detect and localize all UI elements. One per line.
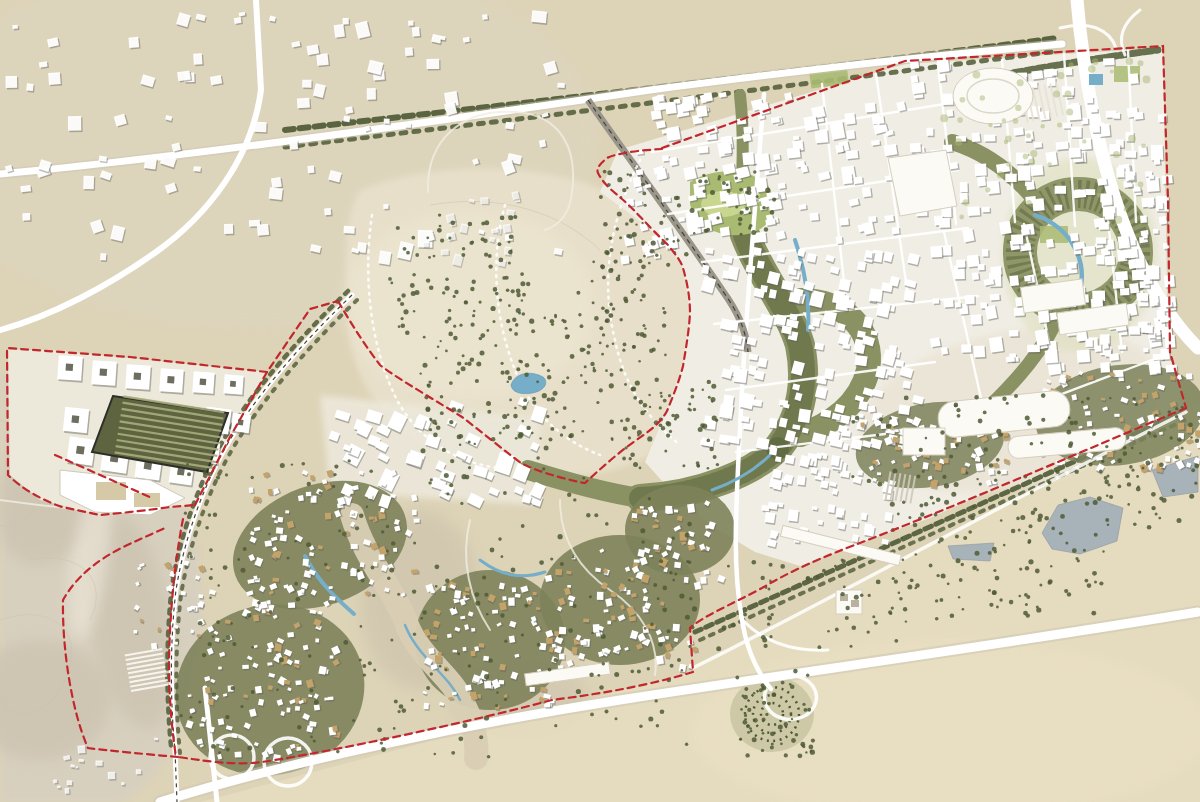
tree-dot <box>429 285 434 290</box>
building <box>350 568 356 576</box>
tree-dot <box>659 406 662 409</box>
building <box>831 455 841 466</box>
tree-dot <box>1114 216 1122 224</box>
tree-dot <box>605 709 609 713</box>
tree-dot <box>568 434 572 438</box>
tree-dot <box>892 577 895 580</box>
building <box>1164 301 1173 308</box>
tree-dot <box>907 585 912 590</box>
tree-dot <box>674 418 677 421</box>
tree-dot <box>307 482 311 486</box>
tree-dot <box>657 597 660 600</box>
tree-dot <box>526 282 530 286</box>
tree-dot <box>210 568 212 570</box>
building <box>697 146 708 154</box>
tree-dot <box>611 437 614 440</box>
tree-dot <box>629 218 634 223</box>
building <box>828 504 836 513</box>
tree-dot <box>690 388 694 392</box>
tree-dot <box>932 502 935 505</box>
tree-dot <box>822 569 826 573</box>
tree-dot <box>596 401 599 404</box>
building <box>482 14 488 20</box>
tree-dot <box>640 528 645 533</box>
tree-dot <box>922 470 925 473</box>
tree-dot <box>940 598 944 602</box>
tree-dot <box>589 595 592 598</box>
building <box>1155 366 1161 373</box>
tree-dot <box>243 547 247 551</box>
tree-dot <box>439 665 442 668</box>
tree-dot <box>306 542 311 547</box>
tree-dot <box>604 250 609 255</box>
building <box>559 654 565 660</box>
tree-dot <box>1083 549 1086 552</box>
building <box>545 575 553 582</box>
tree-dot <box>448 236 451 239</box>
courtyard-block-court <box>65 363 73 371</box>
building <box>839 217 849 225</box>
building <box>684 577 689 583</box>
tree-dot <box>851 475 854 478</box>
tree-dot <box>372 594 375 597</box>
tree-dot <box>532 397 536 401</box>
tree-dot <box>963 199 970 206</box>
building <box>695 161 704 168</box>
tree-dot <box>592 301 595 304</box>
tree-dot <box>662 307 665 310</box>
tree-dot <box>674 573 677 576</box>
building <box>412 510 417 515</box>
tree-dot <box>606 345 609 348</box>
tree-dot <box>639 467 642 470</box>
building <box>938 73 946 81</box>
tree-dot <box>997 171 1004 178</box>
tree-dot <box>522 293 526 297</box>
tree-dot <box>1126 58 1133 65</box>
tree-dot <box>747 731 750 734</box>
tree-dot <box>451 751 455 755</box>
building <box>99 156 107 162</box>
tree-dot <box>663 311 667 315</box>
tree-dot <box>589 672 594 677</box>
tree-dot <box>1041 124 1045 128</box>
tree-dot <box>1033 508 1037 512</box>
tree-dot <box>751 230 756 235</box>
tree-dot <box>276 689 279 692</box>
tree-dot <box>886 424 891 429</box>
building <box>603 609 608 612</box>
courtyard-block-court <box>76 446 85 455</box>
tree-dot <box>541 363 545 367</box>
building <box>911 82 925 95</box>
tree-dot <box>919 448 923 452</box>
building <box>193 53 202 65</box>
building <box>892 227 900 235</box>
building <box>973 345 985 357</box>
tree-dot <box>667 629 671 633</box>
tree-dot <box>1087 583 1092 588</box>
tree-dot <box>562 425 566 429</box>
tree-dot <box>1085 579 1089 583</box>
tree-dot <box>567 493 571 497</box>
tree-dot <box>302 462 306 466</box>
tree-dot <box>874 621 878 625</box>
tree-dot <box>1030 491 1034 495</box>
tree-dot <box>1069 62 1074 67</box>
tree-dot <box>935 599 938 602</box>
tree-dot <box>1003 544 1006 547</box>
tree-dot <box>851 420 855 424</box>
building <box>1027 344 1040 352</box>
tree-dot <box>1023 154 1029 160</box>
tree-dot <box>944 500 949 505</box>
tree-dot <box>702 389 704 391</box>
tree-dot <box>1038 514 1043 519</box>
tree-dot <box>332 485 335 488</box>
building <box>1070 263 1077 268</box>
tree-dot <box>682 464 685 467</box>
tree-dot <box>905 620 907 622</box>
building <box>484 680 491 688</box>
tree-dot <box>189 555 193 559</box>
building <box>932 298 939 304</box>
tree-dot <box>762 701 766 705</box>
tree-dot <box>643 403 648 408</box>
tree-dot <box>687 522 692 527</box>
tree-dot <box>649 406 651 408</box>
building <box>910 143 921 153</box>
tree-dot <box>1099 470 1103 474</box>
tree-dot <box>656 724 659 727</box>
building <box>341 562 348 569</box>
building <box>841 430 851 437</box>
building <box>1045 350 1058 364</box>
tree-dot <box>1059 531 1063 535</box>
building <box>5 76 17 88</box>
building <box>788 509 799 521</box>
tree-dot <box>617 212 622 217</box>
building <box>12 25 18 29</box>
building <box>1099 222 1109 230</box>
tree-dot <box>435 564 440 569</box>
tree-dot <box>1123 446 1127 450</box>
tree-dot <box>960 97 966 103</box>
tree-dot <box>636 332 640 336</box>
tree-dot <box>216 476 220 480</box>
tree-dot <box>717 177 720 180</box>
building <box>242 665 249 669</box>
tree-dot <box>507 380 510 383</box>
tree-dot <box>1072 548 1077 553</box>
building <box>531 10 547 23</box>
tree-dot <box>411 291 416 296</box>
tree-dot <box>944 483 949 488</box>
tree-dot <box>1127 482 1131 486</box>
building <box>772 469 782 479</box>
tree-dot <box>584 381 587 384</box>
building <box>1085 339 1092 347</box>
building <box>379 554 385 560</box>
tree-dot <box>468 466 471 469</box>
tree-dot <box>954 403 959 408</box>
tree-dot <box>1188 423 1193 428</box>
tree-dot <box>296 597 301 602</box>
tree-dot <box>648 497 651 500</box>
building <box>1101 194 1113 206</box>
tree-dot <box>617 177 622 182</box>
tree-dot <box>743 695 748 700</box>
tree-dot <box>434 753 437 756</box>
building <box>853 176 863 184</box>
building <box>20 185 31 192</box>
building <box>1014 307 1025 316</box>
building <box>810 212 819 220</box>
tree-dot <box>879 417 883 421</box>
tree-dot <box>237 558 240 561</box>
tree-dot <box>698 427 703 432</box>
tree-dot <box>268 533 271 536</box>
tree-dot <box>685 743 688 746</box>
tree-dot <box>735 206 738 209</box>
tree-dot <box>440 395 444 399</box>
tree-dot <box>371 566 375 570</box>
building <box>572 647 578 654</box>
tree-dot <box>619 236 622 239</box>
building <box>302 80 311 88</box>
tree-dot <box>745 753 749 757</box>
building <box>607 621 611 625</box>
tree-dot <box>532 401 536 405</box>
tree-dot <box>505 425 510 430</box>
tree-dot <box>501 555 504 558</box>
tree-dot <box>469 241 473 245</box>
tree-dot <box>996 458 1000 462</box>
tree-dot <box>504 698 507 701</box>
tree-dot <box>399 704 404 709</box>
tree-dot <box>558 534 563 539</box>
tree-dot <box>495 292 499 296</box>
tree-dot <box>1068 416 1071 419</box>
tree-dot <box>655 254 658 257</box>
tree-dot <box>508 304 511 307</box>
tree-dot <box>1136 475 1139 478</box>
tree-dot <box>1026 200 1032 206</box>
building <box>294 660 299 664</box>
tree-dot <box>582 430 585 433</box>
building <box>297 98 310 109</box>
building <box>77 745 85 753</box>
tree-dot <box>605 522 609 526</box>
tree-dot <box>631 670 635 674</box>
tree-dot <box>876 433 880 437</box>
tree-dot <box>430 672 433 675</box>
tree-dot <box>413 310 415 312</box>
tree-dot <box>531 329 535 333</box>
tree-dot <box>520 360 523 363</box>
tree-dot <box>972 505 975 508</box>
building <box>756 153 771 170</box>
tree-dot <box>942 475 946 479</box>
tree-dot <box>669 430 672 433</box>
tree-dot <box>1041 393 1046 398</box>
tree-dot <box>846 606 850 610</box>
building <box>478 643 484 648</box>
tree-dot <box>756 195 759 198</box>
tree-dot <box>425 406 430 411</box>
tree-dot <box>386 550 389 553</box>
building <box>314 705 320 711</box>
tree-dot <box>526 426 530 430</box>
tree-dot <box>1113 151 1120 158</box>
tree-dot <box>1102 550 1104 552</box>
tree-dot <box>904 396 909 401</box>
tree-dot <box>1014 394 1018 398</box>
tree-dot <box>629 261 632 264</box>
tree-dot <box>498 242 502 246</box>
tree-dot <box>767 615 772 620</box>
tree-dot <box>212 635 215 638</box>
tree-dot <box>348 459 351 462</box>
building <box>1118 345 1126 350</box>
building <box>1031 70 1043 79</box>
tree-dot <box>647 667 650 670</box>
tree-dot <box>440 411 444 415</box>
tree-dot <box>1026 613 1030 617</box>
building <box>1120 288 1129 295</box>
building <box>877 115 884 124</box>
building <box>773 154 780 161</box>
building <box>1064 68 1072 76</box>
building <box>181 591 186 595</box>
tree-dot <box>390 282 393 285</box>
tree-dot <box>294 540 297 543</box>
tree-dot <box>1136 487 1141 492</box>
building <box>743 126 752 134</box>
tree-dot <box>840 592 844 596</box>
tree-dot <box>642 192 646 196</box>
building <box>1133 112 1143 120</box>
tree-dot <box>1094 581 1097 584</box>
tree-dot <box>554 658 558 662</box>
tree-dot <box>240 705 243 708</box>
tree-dot <box>550 319 555 324</box>
tree-dot <box>232 642 236 646</box>
tree-dot <box>338 529 341 532</box>
tree-dot <box>184 512 187 515</box>
tree-dot <box>657 339 660 342</box>
tree-dot <box>765 188 770 193</box>
tree-dot <box>983 411 987 415</box>
building <box>96 761 103 766</box>
tree-dot <box>722 181 726 185</box>
building <box>249 487 254 493</box>
tree-dot <box>554 314 557 317</box>
tree-dot <box>950 613 955 618</box>
building <box>344 226 355 234</box>
tree-dot <box>226 635 231 640</box>
tree-dot <box>644 204 647 207</box>
tree-dot <box>537 643 541 647</box>
building <box>191 606 195 610</box>
tree-dot <box>562 380 566 384</box>
building <box>408 21 413 26</box>
tree-dot <box>641 294 645 298</box>
building <box>865 102 876 112</box>
building <box>1032 198 1044 211</box>
tree-dot <box>209 597 211 599</box>
tree-dot <box>515 437 518 440</box>
tree-dot <box>453 607 455 609</box>
tree-dot <box>752 560 757 565</box>
building <box>701 265 709 274</box>
tree-dot <box>1107 483 1110 486</box>
tree-dot <box>500 613 504 617</box>
building <box>441 249 449 255</box>
building <box>330 655 334 658</box>
courtyard-block-court <box>133 372 141 380</box>
tree-dot <box>553 391 558 396</box>
building <box>1137 270 1145 280</box>
tree-dot <box>373 668 376 671</box>
building <box>1116 167 1124 177</box>
building <box>303 559 309 566</box>
building <box>329 596 335 601</box>
building <box>815 129 829 143</box>
tree-dot <box>212 692 216 696</box>
building <box>151 643 157 650</box>
tree-dot <box>670 664 674 668</box>
building <box>383 204 388 209</box>
building <box>660 602 664 606</box>
tree-dot <box>565 327 568 330</box>
tree-dot <box>769 635 772 638</box>
tree-dot <box>445 278 449 282</box>
tree-dot <box>739 188 743 192</box>
building <box>64 788 69 794</box>
tree-dot <box>479 735 483 739</box>
tree-dot <box>722 625 727 630</box>
tree-dot <box>549 438 553 442</box>
tree-dot <box>914 587 917 590</box>
tree-dot <box>230 622 233 625</box>
tree-dot <box>454 290 458 294</box>
tree-dot <box>488 254 492 258</box>
tree-dot <box>640 273 644 277</box>
building <box>954 302 961 308</box>
tree-dot <box>890 502 895 507</box>
tree-dot <box>660 392 663 395</box>
tree-dot <box>637 430 642 435</box>
building <box>218 718 225 725</box>
building <box>306 44 319 55</box>
tree-dot <box>704 180 708 184</box>
tree-dot <box>603 222 608 227</box>
tree-dot <box>465 475 470 480</box>
building <box>733 368 748 383</box>
tree-dot <box>627 173 629 175</box>
tree-dot <box>1019 568 1022 571</box>
tree-dot <box>784 722 788 726</box>
building <box>198 594 203 598</box>
tree-dot <box>900 537 902 539</box>
tree-dot <box>279 657 284 662</box>
tree-dot <box>446 492 449 495</box>
tree-dot <box>508 215 513 220</box>
building <box>1055 186 1066 194</box>
building <box>775 456 782 462</box>
tree-dot <box>222 639 225 642</box>
